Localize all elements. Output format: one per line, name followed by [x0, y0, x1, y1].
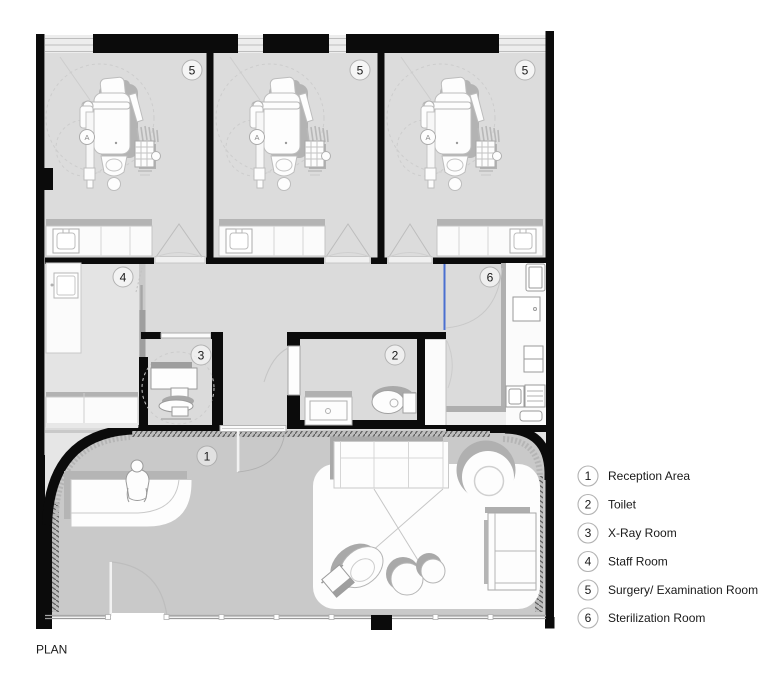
svg-text:5: 5 — [357, 64, 364, 78]
svg-text:Toilet: Toilet — [608, 498, 637, 512]
svg-text:3: 3 — [585, 526, 592, 540]
svg-text:5: 5 — [522, 64, 529, 78]
svg-text:5: 5 — [585, 583, 592, 597]
svg-text:2: 2 — [392, 349, 399, 363]
svg-text:1: 1 — [585, 469, 592, 483]
svg-text:5: 5 — [189, 64, 196, 78]
svg-text:6: 6 — [487, 271, 494, 285]
svg-text:Staff Room: Staff Room — [608, 555, 668, 569]
svg-text:6: 6 — [585, 611, 592, 625]
svg-text:1: 1 — [204, 450, 211, 464]
svg-text:Sterilization Room: Sterilization Room — [608, 611, 705, 625]
svg-text:3: 3 — [198, 349, 205, 363]
svg-text:4: 4 — [120, 271, 127, 285]
svg-text:4: 4 — [585, 555, 592, 569]
svg-text:PLAN: PLAN — [36, 643, 67, 657]
svg-text:X-Ray Room: X-Ray Room — [608, 526, 677, 540]
svg-text:Surgery/ Examination Room: Surgery/ Examination Room — [608, 583, 758, 597]
svg-text:2: 2 — [585, 498, 592, 512]
svg-text:Reception Area: Reception Area — [608, 469, 690, 483]
